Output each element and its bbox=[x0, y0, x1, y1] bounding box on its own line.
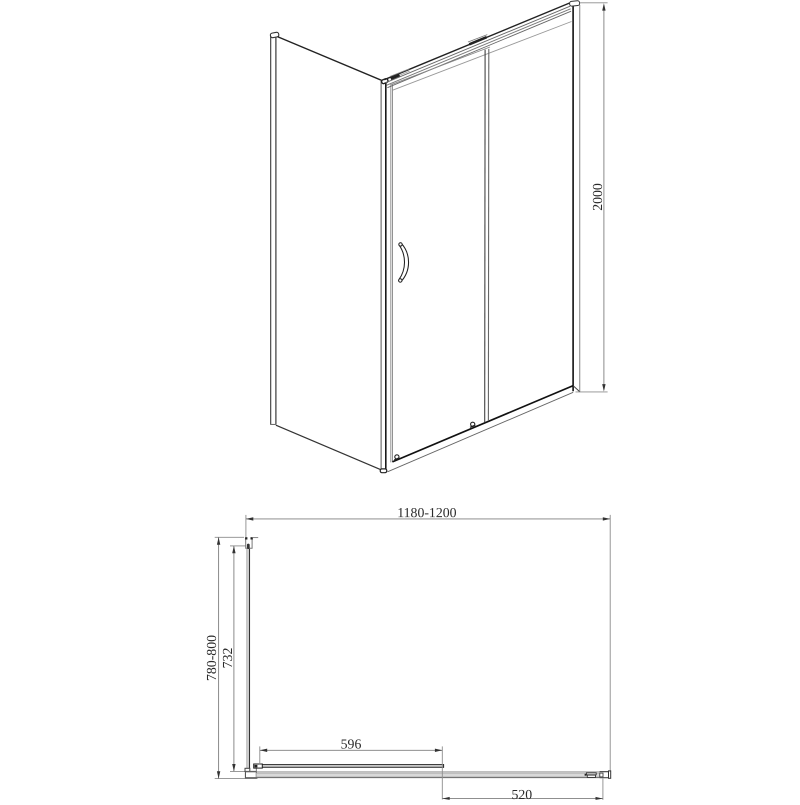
svg-text:2000: 2000 bbox=[590, 183, 605, 211]
svg-text:1180-1200: 1180-1200 bbox=[397, 505, 456, 520]
svg-text:732: 732 bbox=[220, 648, 235, 669]
svg-text:596: 596 bbox=[341, 736, 362, 751]
svg-text:520: 520 bbox=[511, 787, 532, 800]
svg-text:780-800: 780-800 bbox=[204, 635, 219, 681]
